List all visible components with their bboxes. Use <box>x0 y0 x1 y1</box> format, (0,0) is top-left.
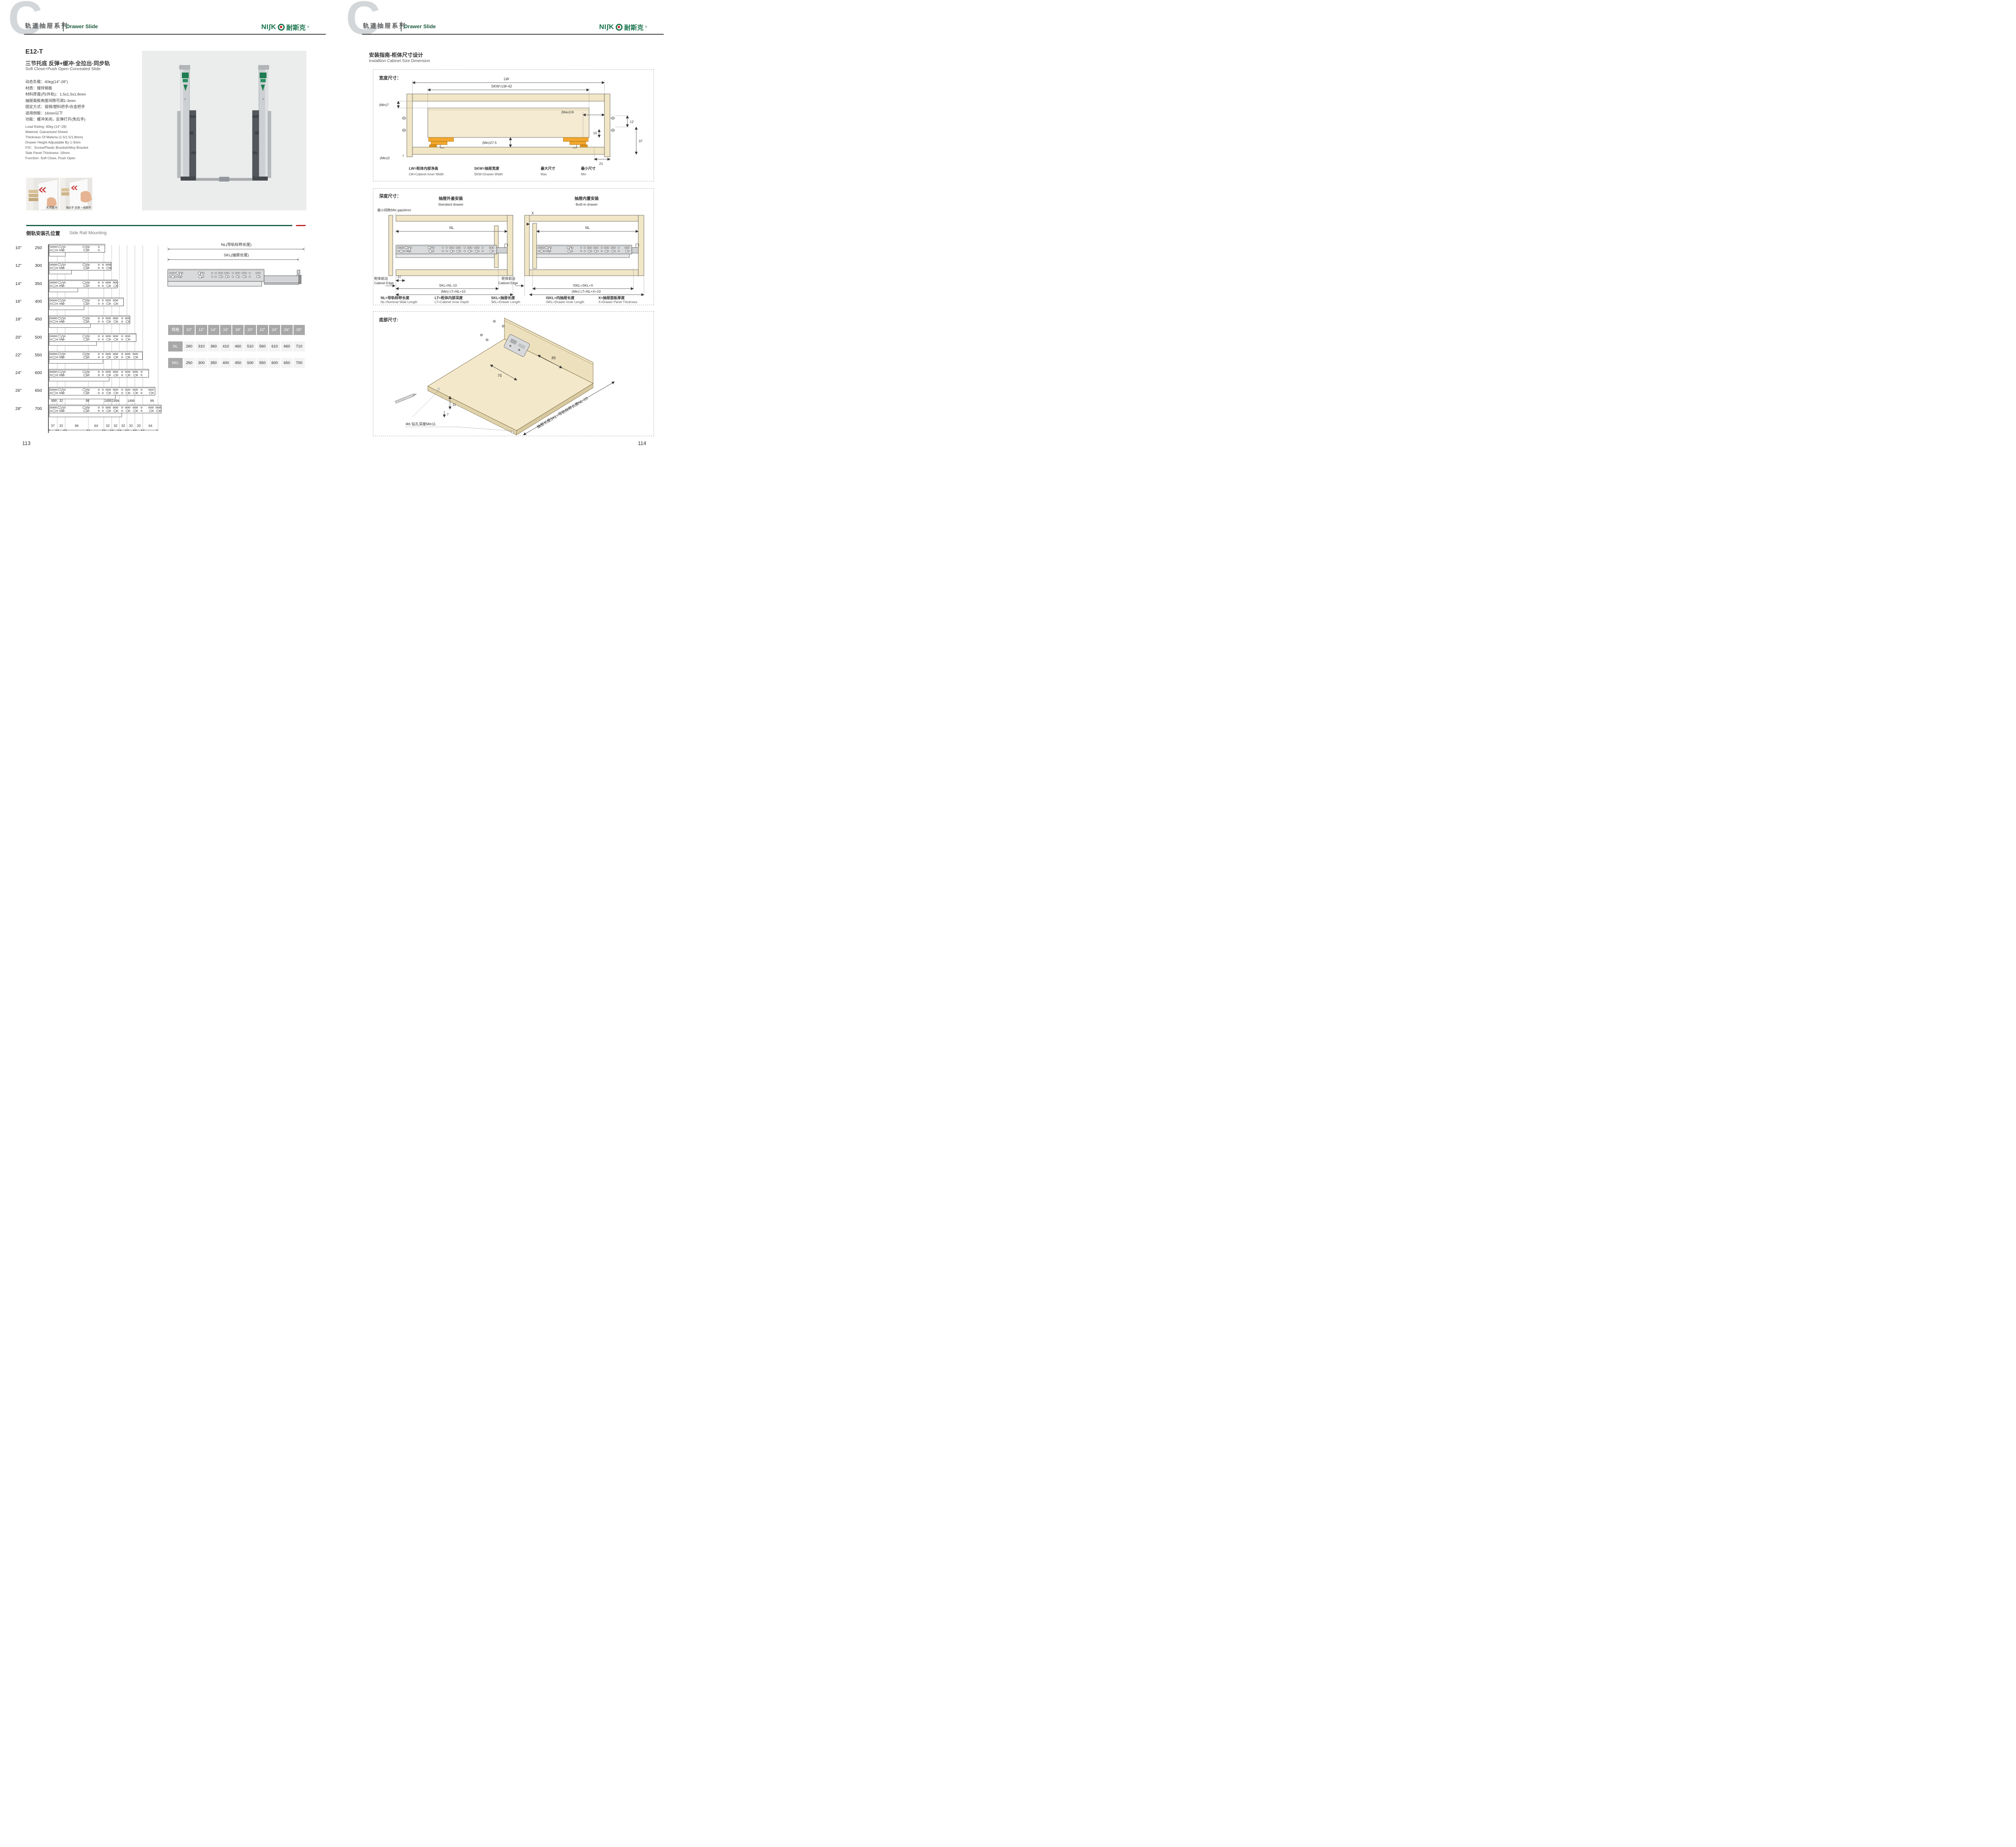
series-title-en: Drawer Slide <box>404 23 436 29</box>
dim-37: 37 <box>639 139 643 143</box>
chapter-letter-watermark: C <box>8 0 42 42</box>
spec-line-zh: 材质：镀锌钢板 <box>25 85 86 92</box>
dim-label: 32 <box>129 424 133 428</box>
spec-line-zh: 抽屉面板高度间隙可调1-3mm <box>25 98 86 104</box>
dim-lt: (Min) LT=NL+X+10 <box>572 289 601 293</box>
table-cell: 660 <box>281 341 292 352</box>
legend-en: LW=Cabinet Inner Width <box>409 173 444 176</box>
size-table: 规格10"12"14"16"18"20"22"24"26"28"NL260310… <box>168 325 305 368</box>
legend-en: LT=Cabinet Inner Depth <box>435 300 469 304</box>
legend-zh: NL=导轨标称长度 <box>381 295 409 300</box>
spec-line-en: Function: Soft Close, Push Open <box>25 156 88 161</box>
table-cell: 400 <box>220 358 231 368</box>
table-cell: 410 <box>220 341 231 352</box>
catalog-spread: C 轨道抽屉系列 Drawer Slide NIʃK耐斯克® C 轨道抽屉系列 … <box>0 0 676 462</box>
table-cell: 510 <box>244 341 256 352</box>
product-photo <box>142 51 306 210</box>
dim-nl: NL <box>585 226 590 230</box>
page-number-right: 114 <box>638 440 646 446</box>
table-cell: 22" <box>257 325 268 335</box>
min-gap-label: 最小间隙(Min gap)4mm <box>377 208 411 212</box>
legend-zh: 最小尺寸 <box>581 166 596 171</box>
product-subtitle-zh: 三节托底 反弹+缓冲·全拉出·同步轨 <box>25 59 110 67</box>
dim-10: 10 <box>593 131 597 135</box>
dim-75: 75 <box>498 374 502 378</box>
drill-note: Φ6 钻孔深度Min11 <box>406 422 436 426</box>
series-title-zh: 轨道抽屉系列 <box>363 21 406 30</box>
legend-zh: LT=柜体内部深度 <box>435 295 463 300</box>
spec-list-zh: 动态负载：40kg(14"-28")材质：镀锌钢板材料厚度(内/外轨)：1.5x… <box>25 79 86 123</box>
spec-line-zh: 功能：缓冲关闭，反弹打开(免拉手) <box>25 116 86 123</box>
dim-21: 21 <box>599 162 603 166</box>
table-cell: 28" <box>294 325 305 335</box>
spec-line-en: Load Rating: 40kg (14"-28) <box>25 124 88 129</box>
table-cell: 12" <box>196 325 207 335</box>
dim-label: 64 <box>148 424 152 428</box>
table-cell: 250 <box>183 358 195 368</box>
table-cell: 16" <box>220 325 231 335</box>
dim-min7: (Min)7 <box>379 103 389 107</box>
dim-max16: (Max)16 <box>561 110 574 114</box>
dim-label: 99 <box>150 399 154 403</box>
spec-line-en: FIX：Screw/Plastic Bracket/Alloy Bracket <box>25 145 88 150</box>
depth-dimension-drawing: 抽屉外盖安装 Standard drawer 最小间隙(Min gap)4mm … <box>373 189 654 305</box>
rail-section-heading-zh: 侧轨安装孔位置 <box>26 230 60 237</box>
dim-label: 32 <box>106 424 110 428</box>
depth-dimension-box: 深度尺寸： 抽屉外盖安装 Standard drawer 最小间隙(Min ga… <box>373 188 654 305</box>
table-cell: 24" <box>269 325 280 335</box>
nl-skl-diagram: NL(导轨标称长度) SKL(抽屉长度) <box>165 241 307 295</box>
legend-en: Min <box>581 173 586 176</box>
dim-85: 85 <box>552 356 556 360</box>
skl-dim-label: SKL(抽屉长度) <box>224 253 249 258</box>
nisko-logo: NIʃK耐斯克® <box>261 22 309 32</box>
logo-o-icon <box>278 24 285 31</box>
page-number-left: 113 <box>22 440 31 446</box>
cabinet-edge-zh: 柜体前沿 <box>502 277 516 281</box>
table-cell: 650 <box>281 358 292 368</box>
bi-title-en: Built-in drawer <box>576 202 598 206</box>
cabinet-edge-en: Cabinet Edge <box>498 281 518 285</box>
table-cell: 26" <box>281 325 292 335</box>
std-title-zh: 抽屉外盖安装 <box>439 196 463 201</box>
product-subtitle-en: Soft Close+Push Open Concealed Slide <box>25 67 101 71</box>
legend-zh: 最大尺寸 <box>541 166 555 171</box>
legend-en: X=Drawer Panel Thickness <box>598 300 637 304</box>
dim-label: 37 <box>51 424 55 428</box>
dim-iskl: ISKL=SKL+X <box>573 283 593 287</box>
spec-line-en: Side Panel Thickness: 16mm <box>25 150 88 156</box>
legend-zh: SKW=抽屉宽度 <box>474 166 499 171</box>
dim-label: 32 <box>137 424 141 428</box>
bottom-dimension-drawing: 75 85 Φ6 钻孔深度Min11 11 7 <box>373 312 654 436</box>
table-cell: 350 <box>208 358 219 368</box>
dim-min3: (Min)3 <box>380 156 389 160</box>
guide-title-zh: 安装指南-柜体尺寸设计 <box>369 51 423 58</box>
width-dimension-drawing: LW SKW=LW-42 (Min)7 (Max)16 12 10 37 (Mi… <box>373 70 654 181</box>
nl-dim-label: NL(导轨标称长度) <box>221 242 251 247</box>
table-cell: 700 <box>294 358 305 368</box>
table-cell: 规格 <box>168 325 183 335</box>
dim-label: 1499 <box>104 399 111 403</box>
legend-en: NL=Nominal Slide Length <box>381 300 417 304</box>
legend-zh: ISKL=内抽屉长度 <box>546 295 575 300</box>
dim-label: 1499 <box>112 399 119 403</box>
dim-label: 96 <box>75 424 79 428</box>
logo-text: NIʃK <box>599 23 614 31</box>
dim-label: 64 <box>94 424 98 428</box>
legend-zh: LW=柜体内部净高 <box>409 166 438 171</box>
dim-37: 37 <box>398 275 401 279</box>
bi-title-zh: 抽屉内置安装 <box>575 196 599 201</box>
legend-en: SKL=Drawer Length <box>491 300 520 304</box>
dim-nl: NL <box>449 226 454 230</box>
spec-list-en: Load Rating: 40kg (14"-28)Material: Galv… <box>25 124 88 161</box>
table-cell: 260 <box>183 341 195 352</box>
table-cell: 18" <box>232 325 244 335</box>
table-cell: 460 <box>232 341 244 352</box>
series-title-en: Drawer Slide <box>66 23 98 29</box>
dim-label: 999 <box>51 399 57 403</box>
feature-photo-soft-close: 关闭缓冲 <box>26 178 59 210</box>
table-cell: 560 <box>257 341 268 352</box>
dim-12: 12 <box>630 120 634 124</box>
table-cell: 710 <box>294 341 305 352</box>
dim-7: 7 <box>447 412 449 416</box>
photo-caption: 关闭缓冲 <box>46 206 57 209</box>
dim-skw: SKW=LW-42 <box>491 84 512 88</box>
title-divider <box>401 22 402 31</box>
slide-pair-illustration <box>142 51 306 210</box>
photo-caption: 免拉手 反弹 一按即开 <box>66 206 92 209</box>
title-divider <box>63 22 64 31</box>
header-rule <box>24 34 326 35</box>
spec-line-zh: 材料厚度(内/外轨)：1.5x1.5x1.8mm <box>25 92 86 98</box>
legend-zh: X=抽屉面板厚度 <box>598 295 625 300</box>
rail-section-heading-en: Side Rail Mounting <box>69 231 106 235</box>
dim-label: 32 <box>59 399 63 403</box>
spec-line-en: Thickness Of Materia (1.5/1.5/1.8mm) <box>25 135 88 140</box>
table-cell: 360 <box>208 341 219 352</box>
guide-title-en: Installtion Cabinet Size Dimension <box>369 59 430 63</box>
table-cell: 500 <box>244 358 256 368</box>
table-cell: 310 <box>196 341 207 352</box>
legend-en: SKW=Drawer Width <box>474 173 503 176</box>
cabinet-edge-en: Cabinet Edge <box>374 281 394 285</box>
table-cell: 600 <box>269 358 280 368</box>
nisko-logo: NIʃK耐斯克® <box>599 22 647 32</box>
table-cell: 610 <box>269 341 280 352</box>
width-dimension-box: 宽度尺寸： <box>373 69 654 181</box>
bottom-dimension-box: 底部尺寸: <box>373 311 654 436</box>
header-rule <box>362 34 664 35</box>
dim-label: 1499 <box>127 399 135 403</box>
dim-label: 99 <box>86 399 90 403</box>
dim-lw: LW <box>504 77 509 81</box>
dim-label: 32 <box>114 424 118 428</box>
table-cell: 10" <box>183 325 195 335</box>
feature-photo-push-open: 免拉手 反弹 一按即开 <box>60 178 92 210</box>
spec-line-zh: 固定方式：插销/塑料把手/合金把手 <box>25 104 86 110</box>
section-divider-red <box>296 225 306 226</box>
dim-min275: (Min)27.5 <box>482 141 497 145</box>
dim-lt: (Min) LT=NL+10 <box>441 289 466 293</box>
legend-en: Max <box>541 173 547 176</box>
logo-text: NIʃK <box>261 23 276 31</box>
table-cell: 20" <box>244 325 256 335</box>
spec-line-zh: 适用侧板：16mm以下 <box>25 110 86 117</box>
table-cell: 300 <box>196 358 207 368</box>
product-model: E12-T <box>25 48 43 56</box>
cabinet-edge-zh: 柜体前沿 <box>374 277 388 281</box>
table-cell: 14" <box>208 325 219 335</box>
table-cell: 550 <box>257 358 268 368</box>
table-cell: NL <box>168 341 183 352</box>
spec-line-en: Material: Galvanized Sheed <box>25 129 88 135</box>
dim-label: 32 <box>59 424 63 428</box>
spec-line-en: Drawer Height Adjustable By 1-3mm <box>25 140 88 145</box>
dim-11: 11 <box>452 403 456 407</box>
legend-zh: SKL=抽屉长度 <box>491 295 515 300</box>
std-title-en: Standard drawer <box>438 202 464 206</box>
legend-en: ISKL=Drawer Inner Length <box>546 300 584 304</box>
dim-x: X <box>531 211 534 215</box>
table-cell: SKL <box>168 358 183 368</box>
dim-skl: SKL=NL-10 <box>439 283 457 287</box>
dim-label: 32 <box>121 424 125 428</box>
logo-o-icon <box>616 24 623 31</box>
spec-line-zh: 动态负载：40kg(14"-28") <box>25 79 86 85</box>
table-cell: 450 <box>232 358 244 368</box>
side-rail-mounting-diagram: 9993299149914991499993732966432323232326… <box>12 242 171 438</box>
section-divider-green <box>26 225 292 226</box>
chapter-letter-watermark: C <box>346 0 380 42</box>
series-title-zh: 轨道抽屉系列 <box>25 21 69 30</box>
